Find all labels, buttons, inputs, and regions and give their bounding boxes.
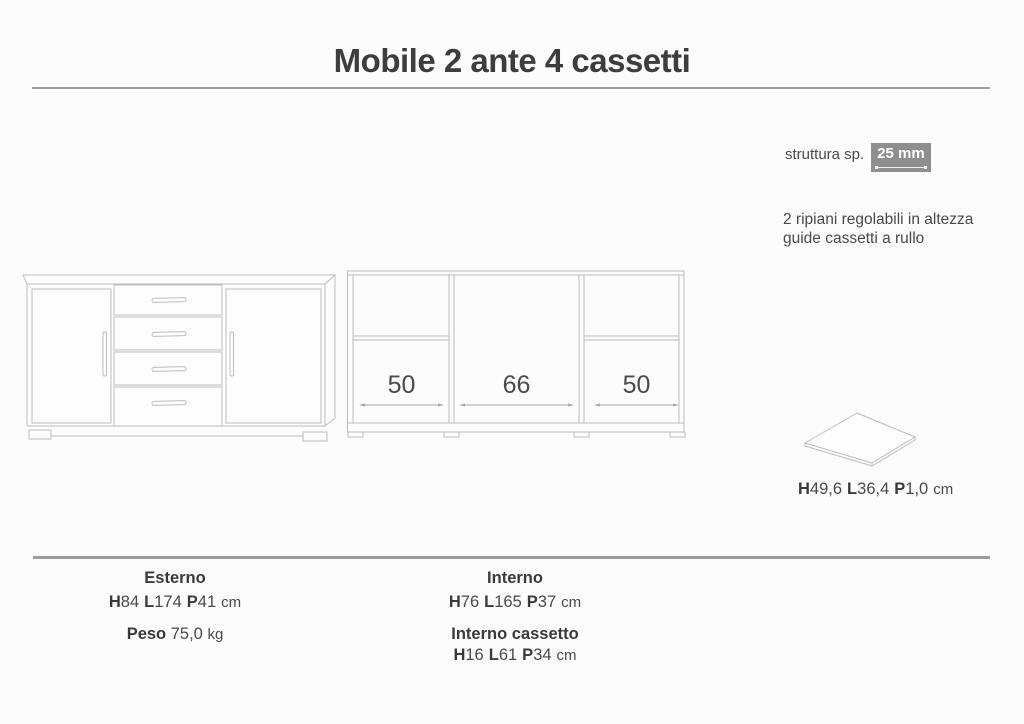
specs-divider [33,556,990,559]
structure-thickness-badge: 25 mm [871,143,931,172]
drw-p-letter: P [522,646,533,664]
internal-dimensions-title: Interno [405,569,625,588]
feature-line-2: guide cassetti a rullo [783,229,973,248]
ext-h-letter: H [109,593,121,611]
shelf-dim-l-value: 36,4 [857,480,889,498]
drawer-internal-values: H16L61P34cm [405,646,625,665]
int-h-value: 76 [461,593,479,611]
int-p-letter: P [527,593,538,611]
ext-h-value: 84 [121,593,139,611]
drw-l-value: 61 [499,646,517,664]
shelf-dim-p-value: 1,0 [905,480,928,498]
int-h-letter: H [449,593,461,611]
int-p-value: 37 [538,593,556,611]
external-dimensions-values: H84L174P41cm [65,593,285,612]
int-l-value: 165 [494,593,522,611]
ext-l-letter: L [144,593,154,611]
ext-p-letter: P [187,593,198,611]
compartment-width-left: 50 [359,371,444,400]
int-unit: cm [561,594,581,611]
cabinet-foot-left [29,430,51,439]
shelf-dimensions: H49,6L36,4P1,0cm [798,480,953,499]
shelf-dim-h-value: 49,6 [810,480,842,498]
spec-sheet: Mobile 2 ante 4 cassetti struttura sp. 2… [0,0,1024,724]
drw-h-letter: H [453,646,465,664]
drw-h-value: 16 [465,646,483,664]
internal-view-feet [348,432,685,437]
carcass-outline [348,271,685,432]
shelf-dim-unit: cm [933,481,953,498]
width-dimension-arrows [359,404,679,407]
shelf-dim-l-letter: L [847,480,857,498]
internal-view-drawing [345,265,690,445]
external-dimensions-title: Esterno [65,569,285,588]
drw-unit: cm [557,647,577,664]
cabinet-right-side [325,275,335,426]
adjustable-shelves [353,336,679,340]
ext-unit: cm [221,594,241,611]
structure-thickness-note: struttura sp. 25 mm [785,143,931,172]
structure-thickness-label: struttura sp. [785,143,864,163]
cabinet-top-panel [23,275,335,284]
drw-l-letter: L [489,646,499,664]
weight-label: Peso [127,625,166,643]
ext-p-value: 41 [198,593,216,611]
shelf-panel-top-face [805,413,915,463]
compartment-width-right: 50 [594,371,679,400]
shelf-panel-drawing [795,406,935,472]
compartment-width-middle: 66 [459,371,574,400]
shelf-dim-h-letter: H [798,480,810,498]
page-title: Mobile 2 ante 4 cassetti [0,42,1024,80]
internal-dimensions-values: H76L165P37cm [405,593,625,612]
vertical-dividers [449,275,584,423]
cabinet-foot-right [303,432,327,441]
feature-notes: 2 ripiani regolabili in altezza guide ca… [783,210,973,248]
shelf-dim-p-letter: P [894,480,905,498]
weight-value: 75,0 [171,625,203,643]
feature-line-1: 2 ripiani regolabili in altezza [783,210,973,229]
drawer-internal-title: Interno cassetto [405,625,625,644]
drw-p-value: 34 [533,646,551,664]
badge-dimension-marker [875,167,927,168]
weight-unit: kg [207,626,223,643]
weight-row: Peso 75,0 kg [65,625,285,644]
cabinet-front-drawing [15,258,345,453]
title-divider [32,87,990,89]
internal-dimensions-block: Interno H76L165P37cm Interno cassetto H1… [405,569,625,665]
ext-l-value: 174 [154,593,182,611]
structure-thickness-value: 25 mm [877,145,925,162]
external-dimensions-block: Esterno H84L174P41cm Peso 75,0 kg [65,569,285,644]
int-l-letter: L [484,593,494,611]
